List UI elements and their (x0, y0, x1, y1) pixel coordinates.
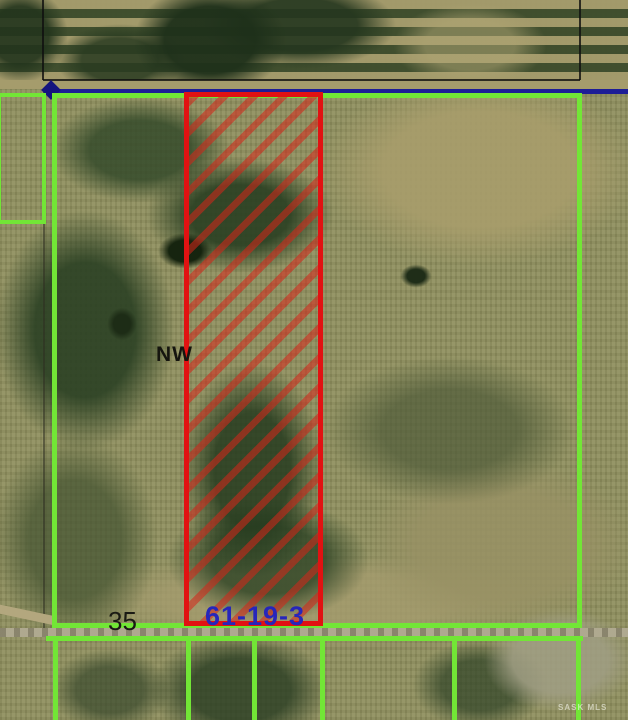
lot-divider (53, 640, 58, 720)
highlighted-parcel[interactable] (184, 92, 323, 626)
quarter-label: NW (156, 344, 193, 365)
lot-divider (452, 640, 457, 720)
lot-divider (252, 640, 257, 720)
survey-line-vertical-left (42, 0, 44, 80)
south-boundary-line (46, 636, 583, 641)
map-canvas[interactable]: NW 35 61-19-3 SASK MLS (0, 0, 628, 720)
survey-line-horizontal (43, 79, 580, 81)
township-label: 61-19-3 (205, 603, 305, 630)
cultivated-field-strip (0, 0, 628, 80)
section-label: 35 (108, 608, 137, 634)
lot-divider (320, 640, 325, 720)
field-gap (0, 80, 628, 89)
west-parcel-boundary (0, 93, 46, 224)
lot-divider (186, 640, 191, 720)
watermark-label: SASK MLS (558, 704, 607, 712)
survey-line-vertical-right (579, 0, 581, 80)
